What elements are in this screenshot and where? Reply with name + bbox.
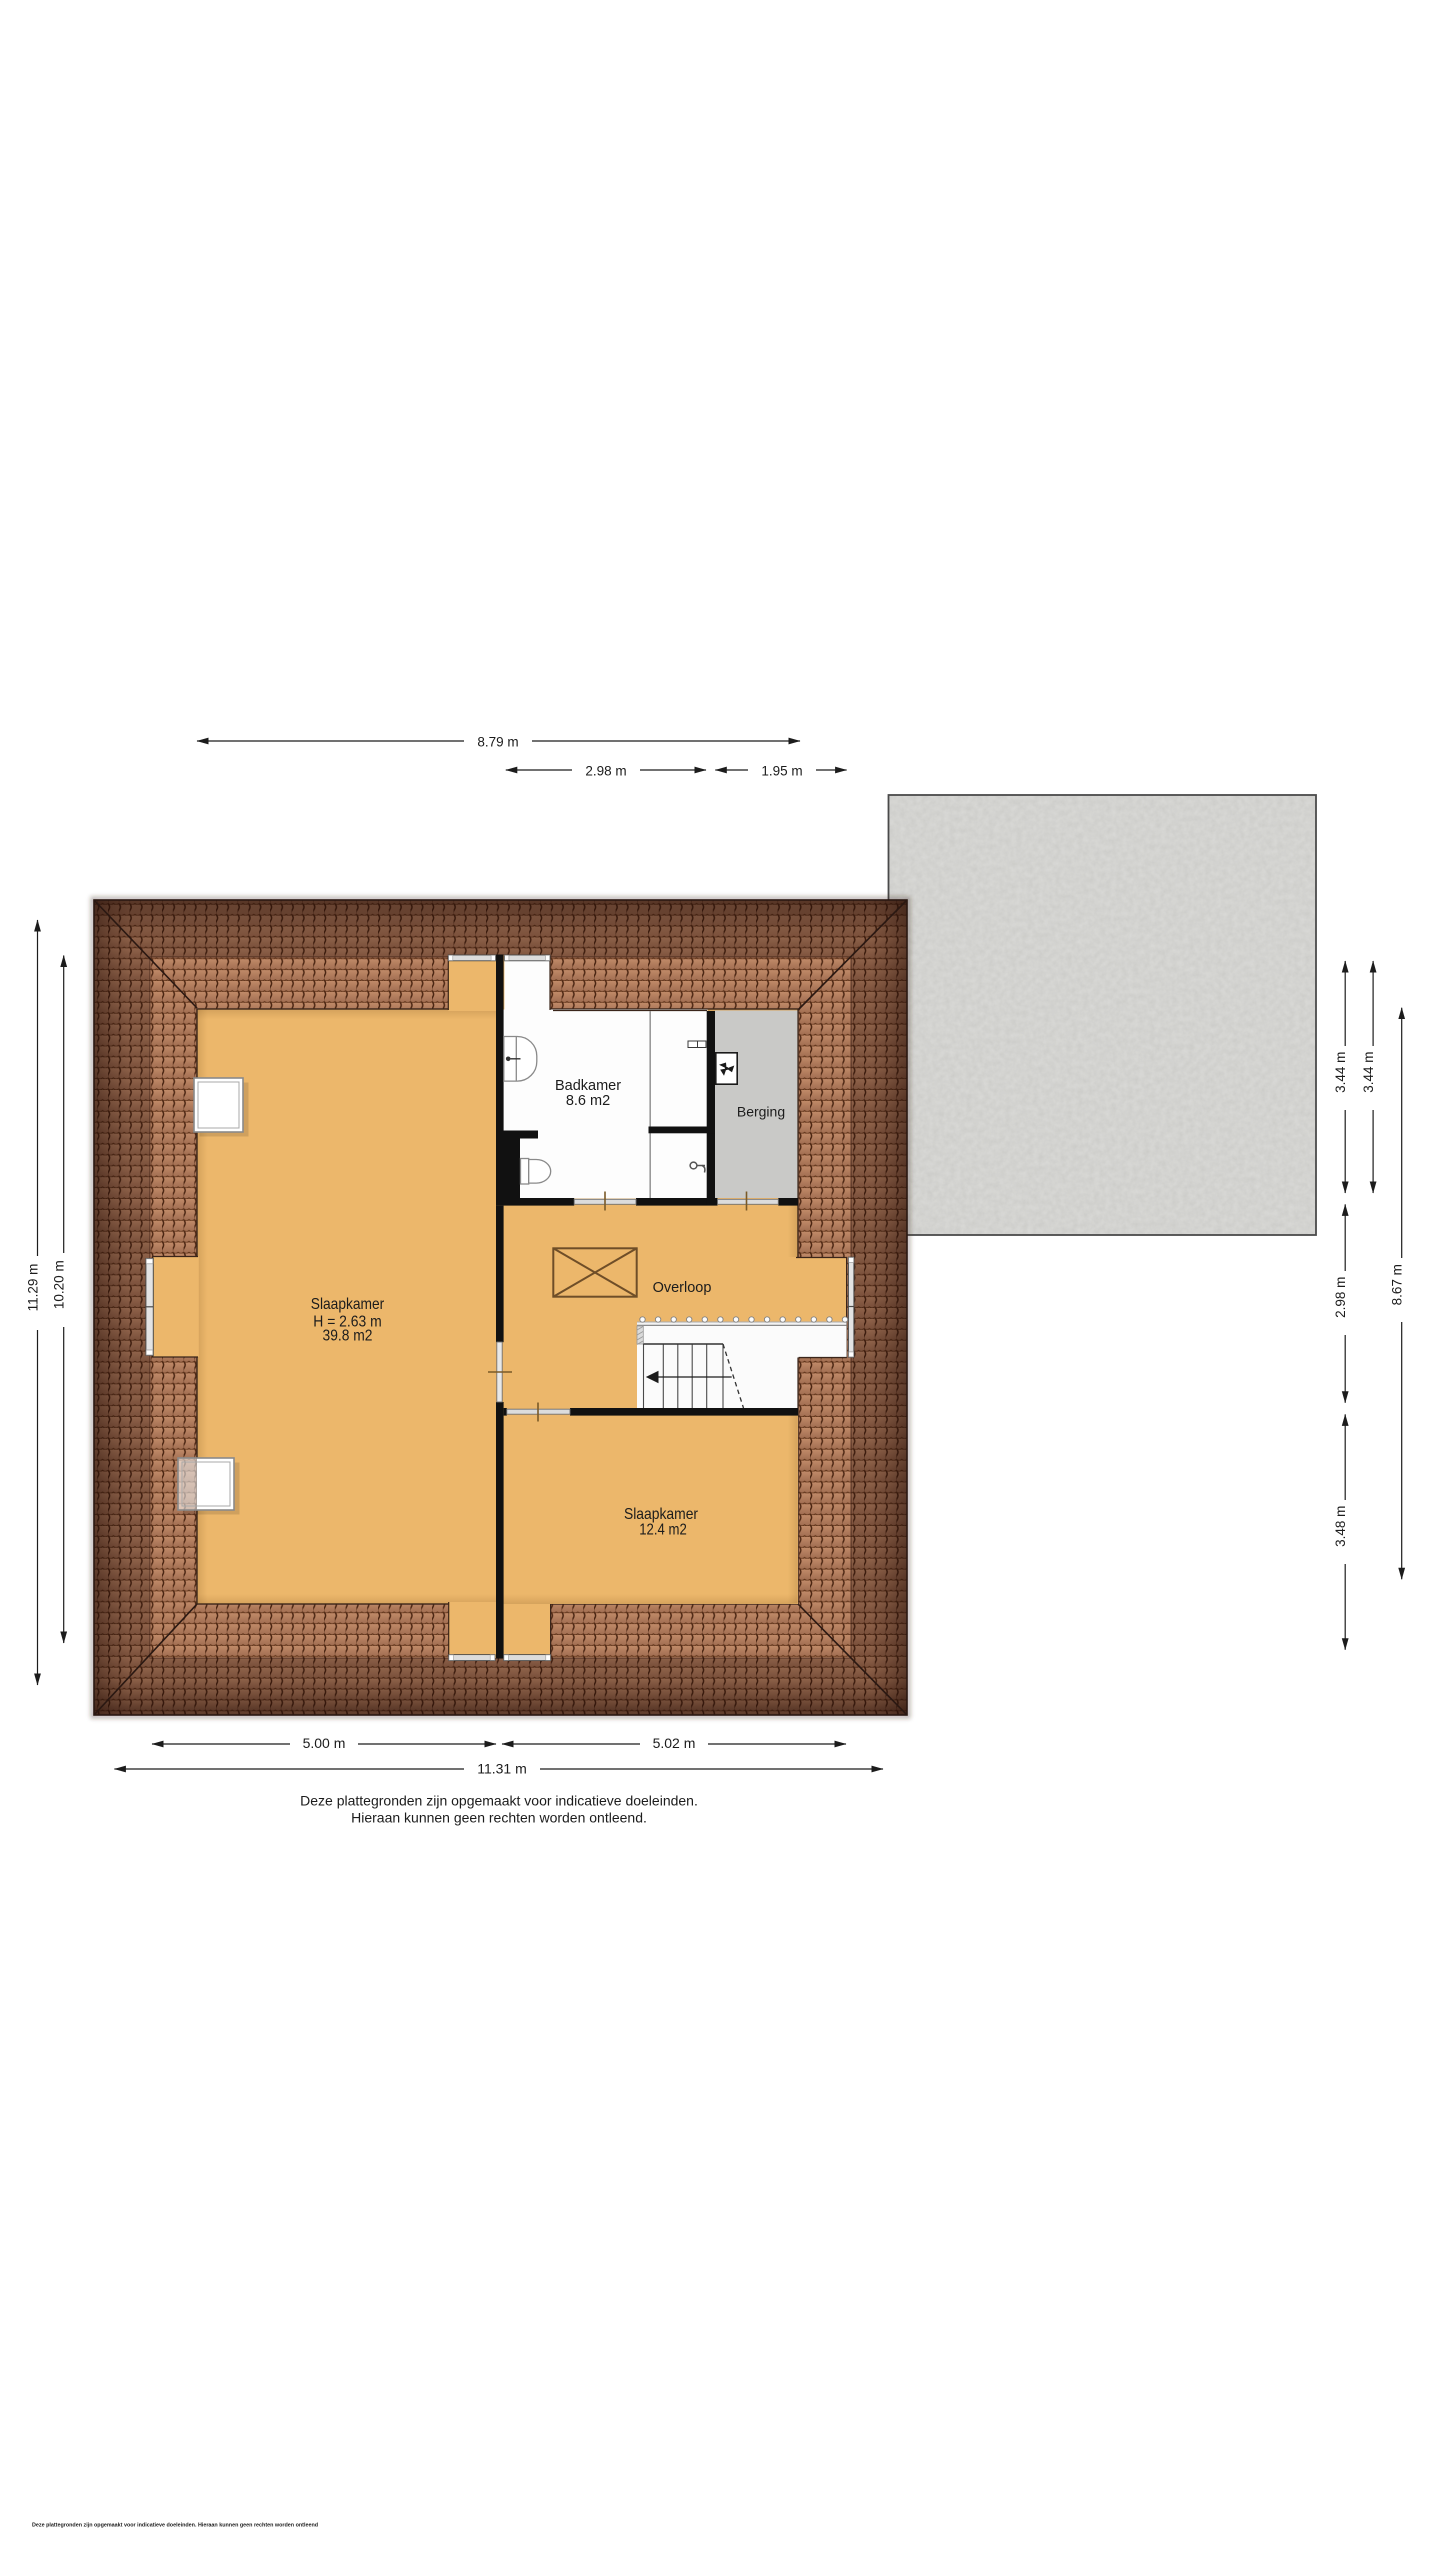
svg-text:8.79 m: 8.79 m (477, 735, 518, 750)
svg-text:2.98 m: 2.98 m (1333, 1277, 1348, 1318)
svg-text:1.95 m: 1.95 m (761, 764, 802, 779)
svg-text:10.20 m: 10.20 m (52, 1260, 67, 1309)
svg-text:2.98 m: 2.98 m (585, 764, 626, 779)
svg-text:Slaapkamer: Slaapkamer (624, 1506, 699, 1523)
svg-text:3.48 m: 3.48 m (1333, 1506, 1348, 1547)
svg-text:3.44 m: 3.44 m (1333, 1052, 1348, 1093)
svg-text:Slaapkamer: Slaapkamer (311, 1296, 385, 1313)
svg-text:12.4 m2: 12.4 m2 (639, 1522, 687, 1539)
svg-text:11.29 m: 11.29 m (26, 1264, 41, 1312)
svg-text:Hieraan kunnen geen rechten wo: Hieraan kunnen geen rechten worden ontle… (351, 1810, 647, 1826)
svg-text:Badkamer: Badkamer (555, 1078, 621, 1094)
svg-text:11.31 m: 11.31 m (477, 1761, 527, 1777)
svg-text:39.8 m2: 39.8 m2 (323, 1328, 373, 1345)
svg-text:Berging: Berging (737, 1104, 785, 1120)
svg-text:8.6 m2: 8.6 m2 (566, 1093, 610, 1109)
svg-text:8.67 m: 8.67 m (1390, 1264, 1405, 1305)
svg-text:5.00 m: 5.00 m (303, 1735, 346, 1751)
svg-text:Deze plattegronden zijn opgema: Deze plattegronden zijn opgemaakt voor i… (32, 2523, 318, 2529)
svg-text:Overloop: Overloop (653, 1280, 712, 1296)
svg-text:5.02 m: 5.02 m (653, 1735, 696, 1751)
svg-text:Deze plattegronden zijn opgema: Deze plattegronden zijn opgemaakt voor i… (300, 1793, 698, 1809)
svg-text:3.44 m: 3.44 m (1361, 1051, 1376, 1092)
